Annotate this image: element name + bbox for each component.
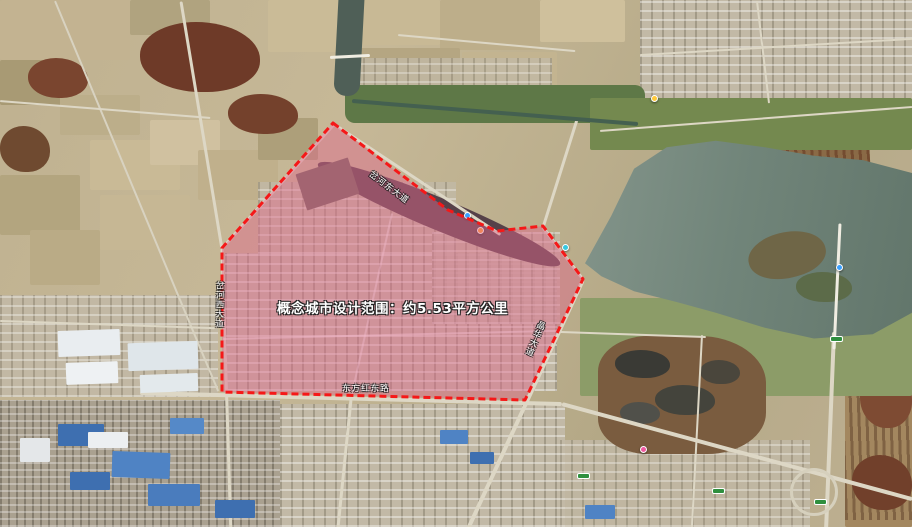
wetland-strip (590, 98, 912, 150)
blue-roof-factory (470, 452, 494, 464)
blue-roof-factory (585, 505, 615, 519)
field-patch (60, 95, 140, 135)
blue-roof-factory (70, 472, 110, 490)
road-jinghua-north (542, 119, 579, 228)
warehouse-roof (128, 341, 199, 371)
poi-marker-orange (477, 227, 484, 234)
field-patch (100, 195, 190, 250)
field-patch (540, 0, 625, 42)
white-box-store (20, 438, 50, 462)
blue-roof-factory (170, 418, 204, 434)
river-north (333, 0, 364, 97)
warehouse-roof (58, 329, 121, 357)
field-patch (0, 0, 130, 60)
blue-roof-factory (440, 430, 468, 444)
poi-marker-blue (464, 212, 471, 219)
expressway-shield (814, 499, 827, 505)
expressway-shield (712, 488, 725, 494)
blue-roof-factory (215, 500, 255, 518)
field-patch (0, 175, 80, 235)
poi-marker-yellow (651, 95, 658, 102)
poi-marker-bridge (836, 264, 843, 271)
poi-marker-pink (640, 446, 647, 453)
warehouse-roof (66, 361, 119, 385)
woods-patch (0, 126, 50, 172)
blue-roof-factory (148, 484, 200, 506)
expressway-shield (577, 473, 590, 479)
lake-island (796, 272, 852, 302)
stockpile (615, 350, 670, 378)
poi-marker-cyan (562, 244, 569, 251)
field-patch (30, 230, 100, 285)
road-label-dongfanghong-east: 东方红东路 (342, 382, 390, 394)
interchange-loop (790, 468, 838, 516)
woods-patch (228, 94, 298, 134)
urban-blocks (280, 404, 565, 527)
satellite-map-canvas[interactable]: 概念城市设计范围：约5.53平方公里 岔河西大道 岔河东大道 晶华大道 东方红东… (0, 0, 912, 527)
blue-roof-factory (112, 451, 171, 479)
design-scope-label: 概念城市设计范围：约5.53平方公里 (277, 297, 508, 317)
expressway-shield (830, 336, 843, 342)
woods-patch (28, 58, 88, 98)
stockpile (700, 360, 740, 384)
white-box-store (88, 432, 128, 448)
urban-blocks (0, 468, 58, 527)
woods-patch (140, 22, 260, 92)
warehouse-roof (140, 373, 199, 393)
stockpile (655, 385, 715, 415)
road-label-chahe-west: 岔河西大道 (213, 281, 226, 329)
